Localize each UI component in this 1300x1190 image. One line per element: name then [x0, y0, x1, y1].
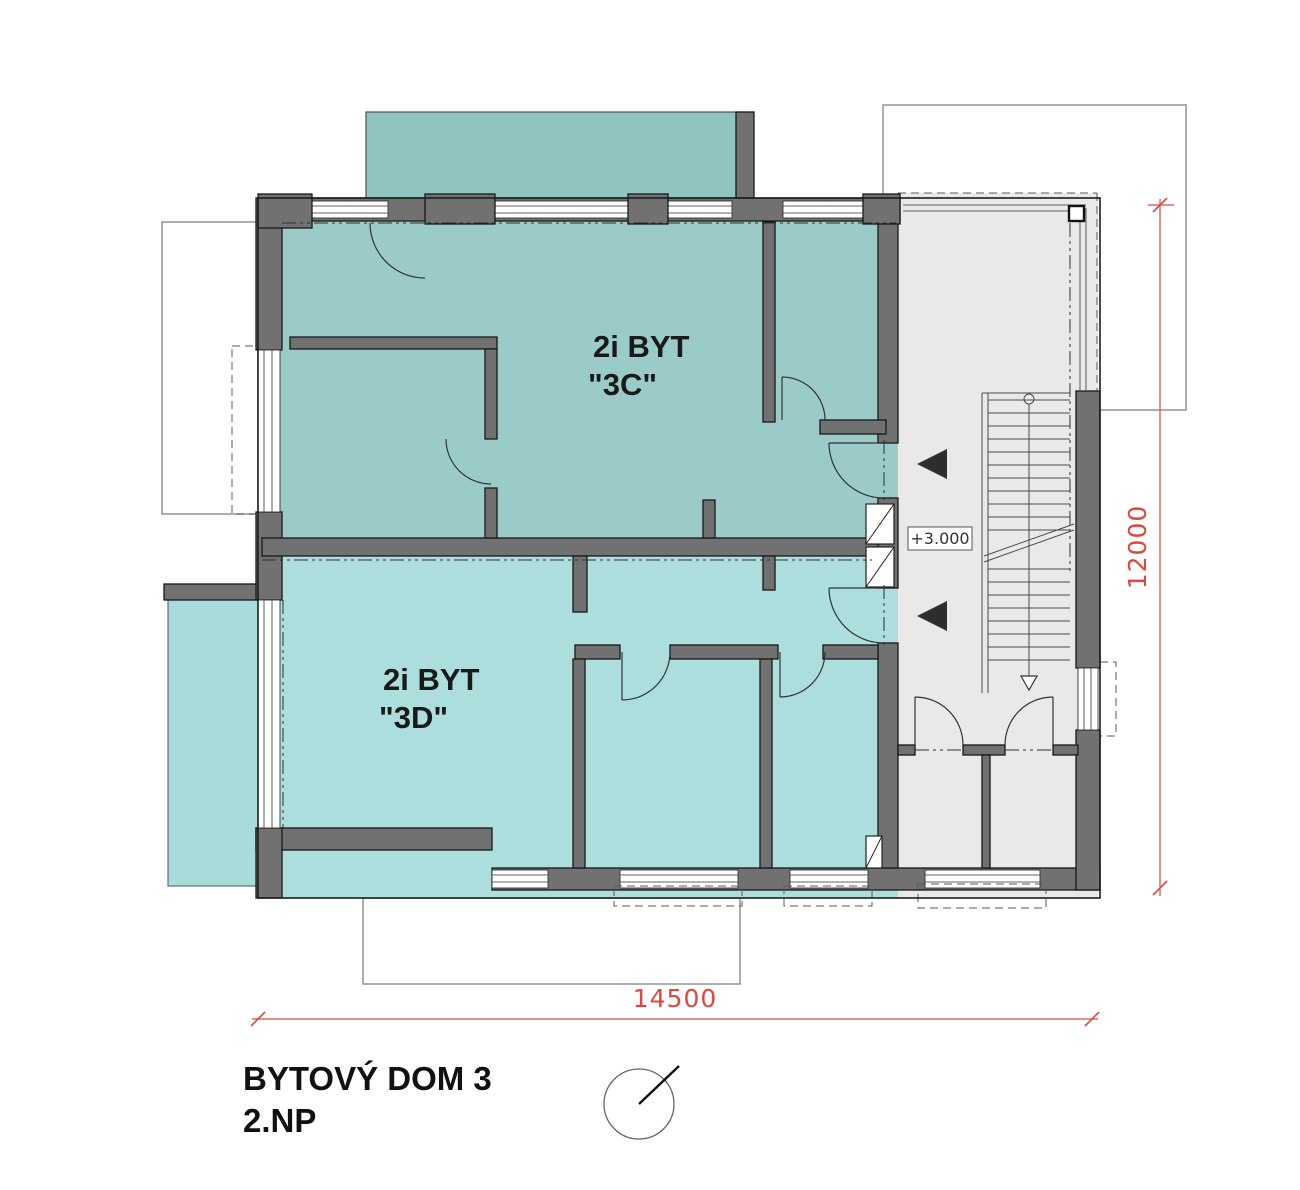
balcony-bottom-left: [164, 584, 258, 886]
terrace-bottom: [363, 898, 740, 984]
apartment-3c-area: [258, 198, 898, 556]
dimension-height-label: 12000: [1123, 505, 1152, 590]
apartment-3c-label-line2: "3C": [588, 367, 657, 402]
north-arrow-icon: [604, 1066, 679, 1139]
dimension-width: 14500: [251, 984, 1099, 1026]
floor-plan-page: +3.000 2i BYT "3C" 2i BYT "3D" 14500 120…: [0, 0, 1300, 1190]
dimension-width-label: 14500: [633, 984, 718, 1013]
terrace-top-left: [162, 222, 258, 514]
apartment-3d-label-line1: 2i BYT: [383, 662, 480, 697]
column-marker: [1069, 206, 1084, 221]
elevation-marker: +3.000: [908, 527, 972, 550]
drawing-title: BYTOVÝ DOM 3: [243, 1060, 492, 1097]
apartment-3c-label-line1: 2i BYT: [593, 329, 690, 364]
drawing-floor-label: 2.NP: [243, 1102, 316, 1139]
balcony-top: [366, 112, 754, 204]
balcony-wall-stub: [164, 584, 258, 600]
apartment-3d-label-line2: "3D": [379, 700, 448, 735]
floor-plan-drawing: +3.000 2i BYT "3C" 2i BYT "3D" 14500 120…: [0, 0, 1300, 1190]
elevation-label: +3.000: [910, 529, 969, 548]
balcony-pillar: [736, 112, 754, 204]
